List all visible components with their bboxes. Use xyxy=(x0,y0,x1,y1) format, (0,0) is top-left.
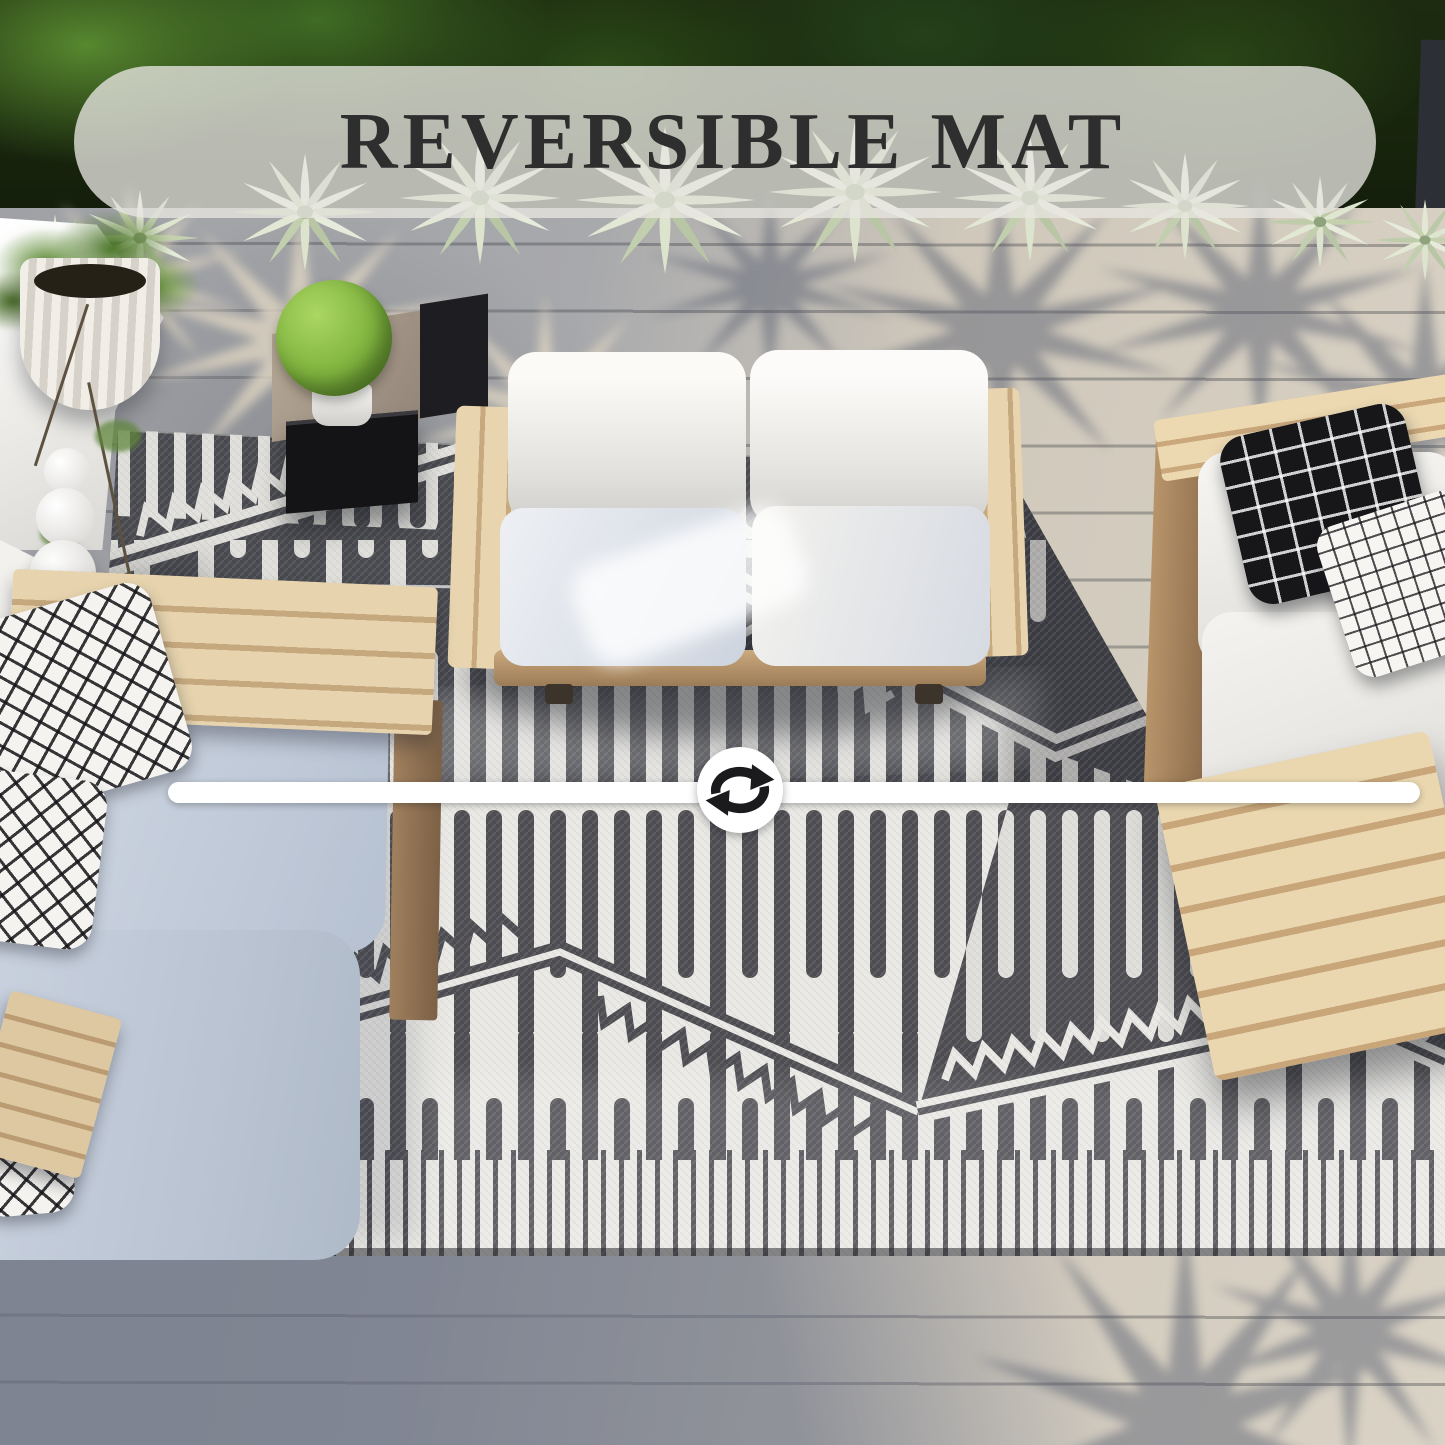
loveseat-back-cushion xyxy=(750,350,988,525)
side-table-top-dark xyxy=(420,294,488,419)
tree-leaves xyxy=(95,420,141,452)
loveseat-foot xyxy=(545,684,573,704)
sculptural-vase xyxy=(36,488,94,546)
loveseat-foot xyxy=(915,684,943,704)
ball-plant xyxy=(276,280,392,396)
banner-title: REVERSIBLE MAT xyxy=(74,66,1376,218)
divider-bar xyxy=(168,782,1420,803)
product-photo-patio-scene: REVERSIBLE MAT xyxy=(0,0,1445,1445)
loveseat-back-cushion xyxy=(508,352,746,524)
swap-icon-badge xyxy=(697,747,783,833)
banner: REVERSIBLE MAT xyxy=(74,66,1376,218)
swap-arrows-icon xyxy=(697,747,783,833)
left-sofa-wood-rail xyxy=(389,700,443,1021)
